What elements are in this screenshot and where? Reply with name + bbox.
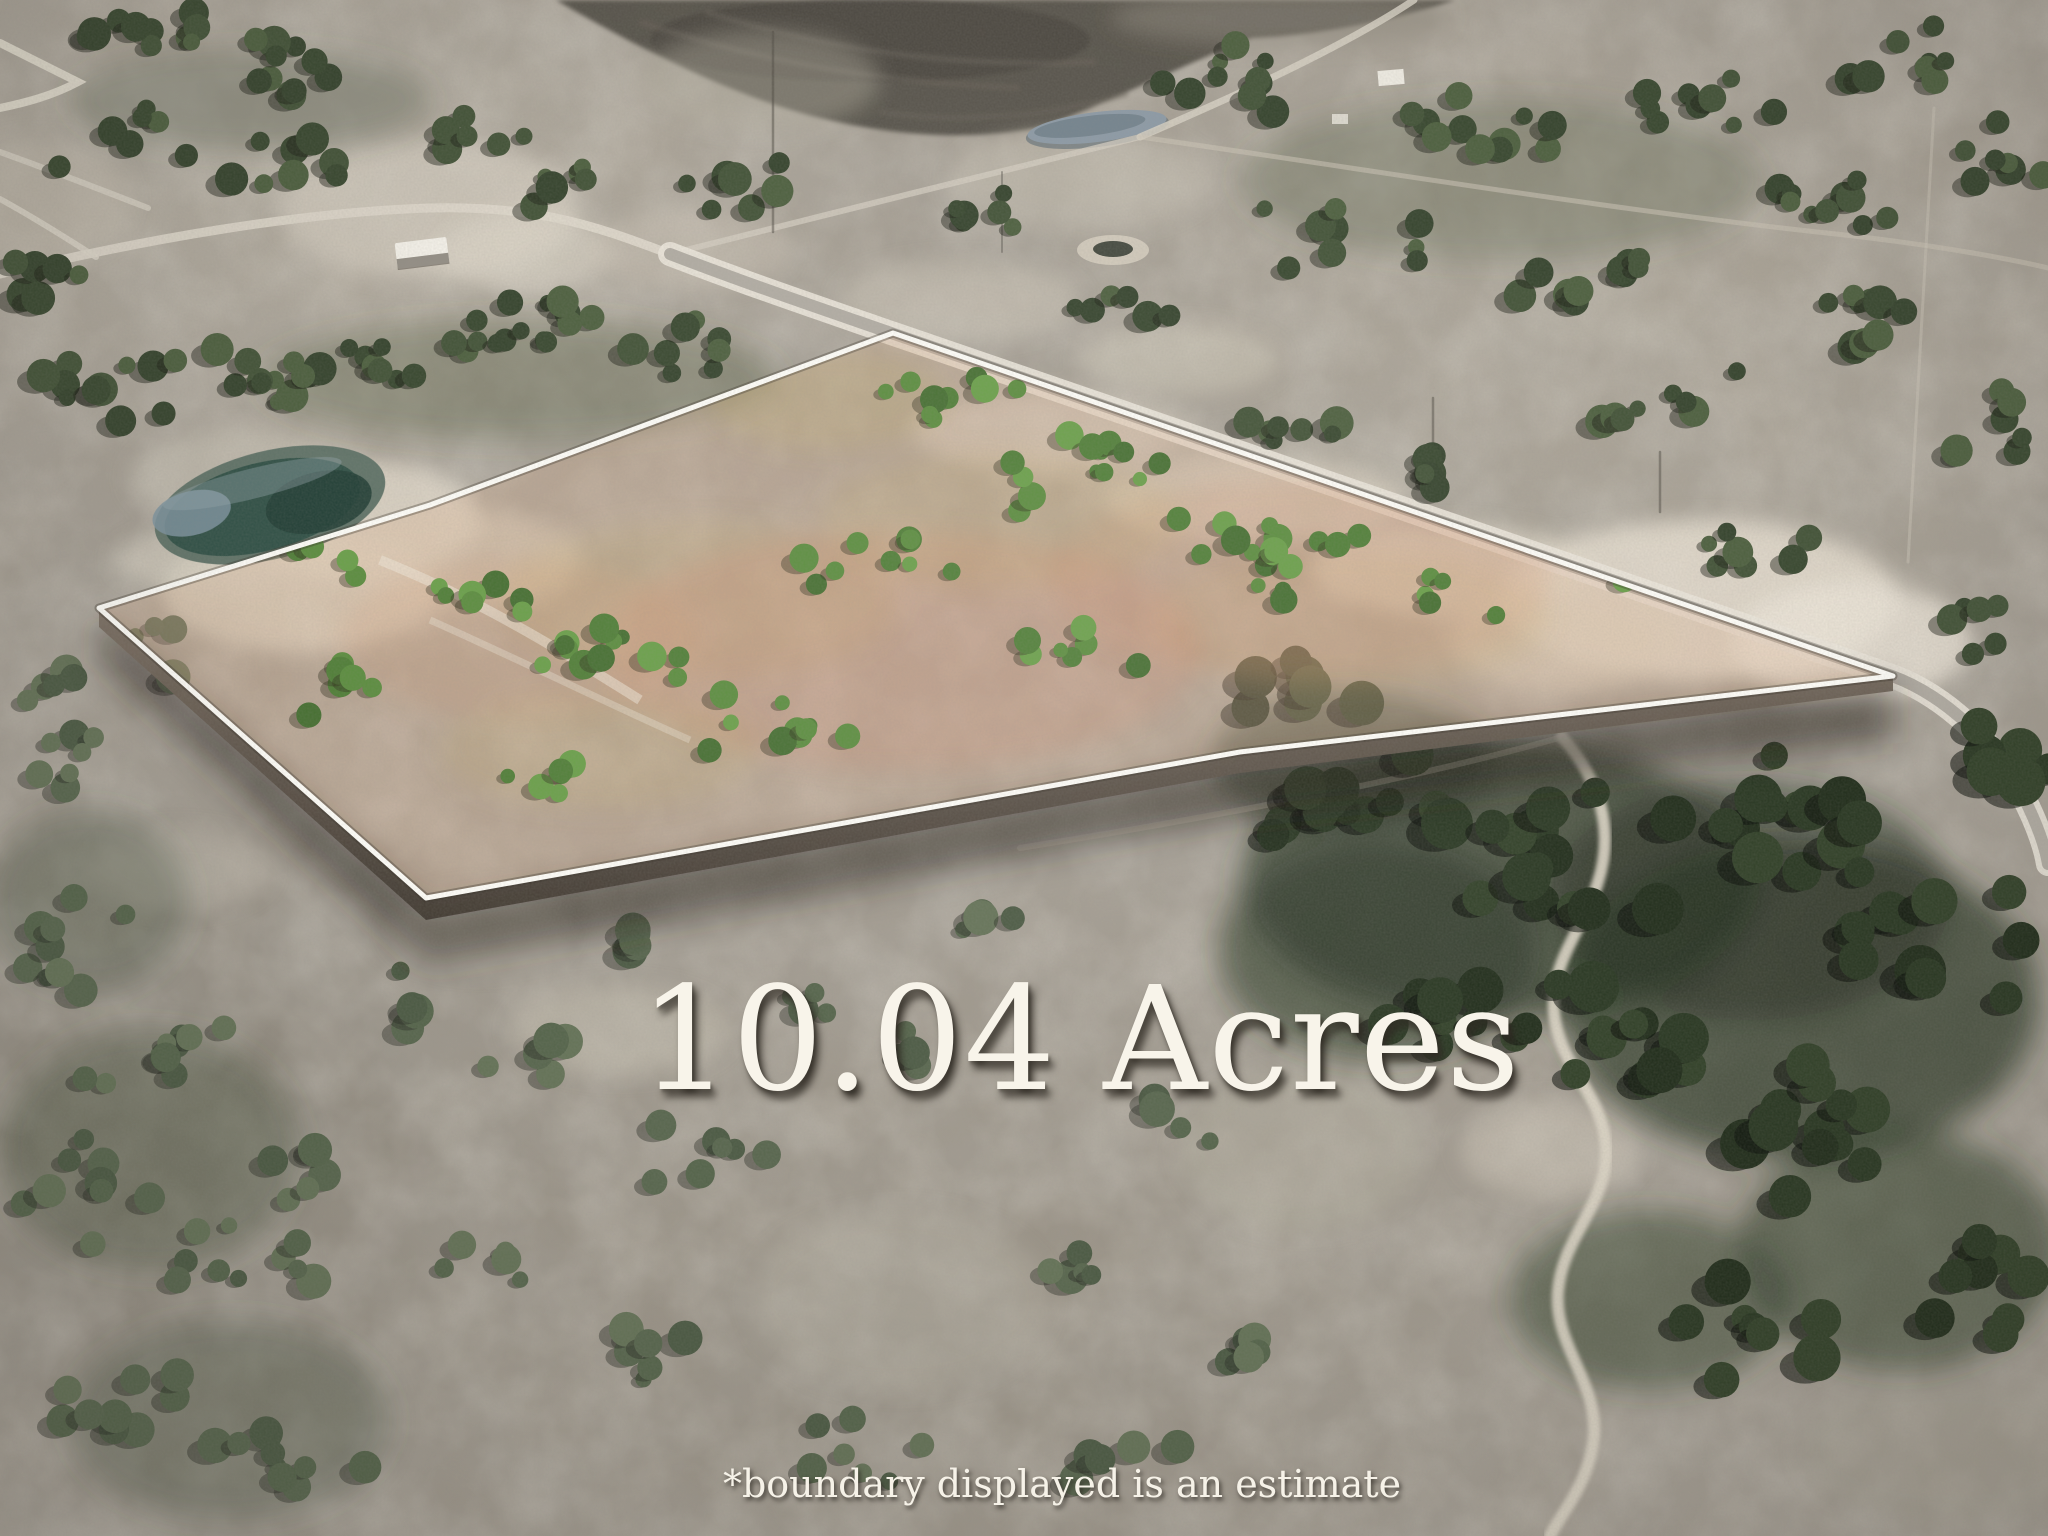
disclaimer-text: *boundary displayed is an estimate [723, 1462, 1401, 1506]
aerial-photo-svg [0, 0, 2048, 1536]
aerial-photo: 10.04 Acres *boundary displayed is an es… [0, 0, 2048, 1536]
acreage-label: 10.04 Acres [639, 955, 1521, 1123]
grain-overlay [0, 0, 2048, 1536]
